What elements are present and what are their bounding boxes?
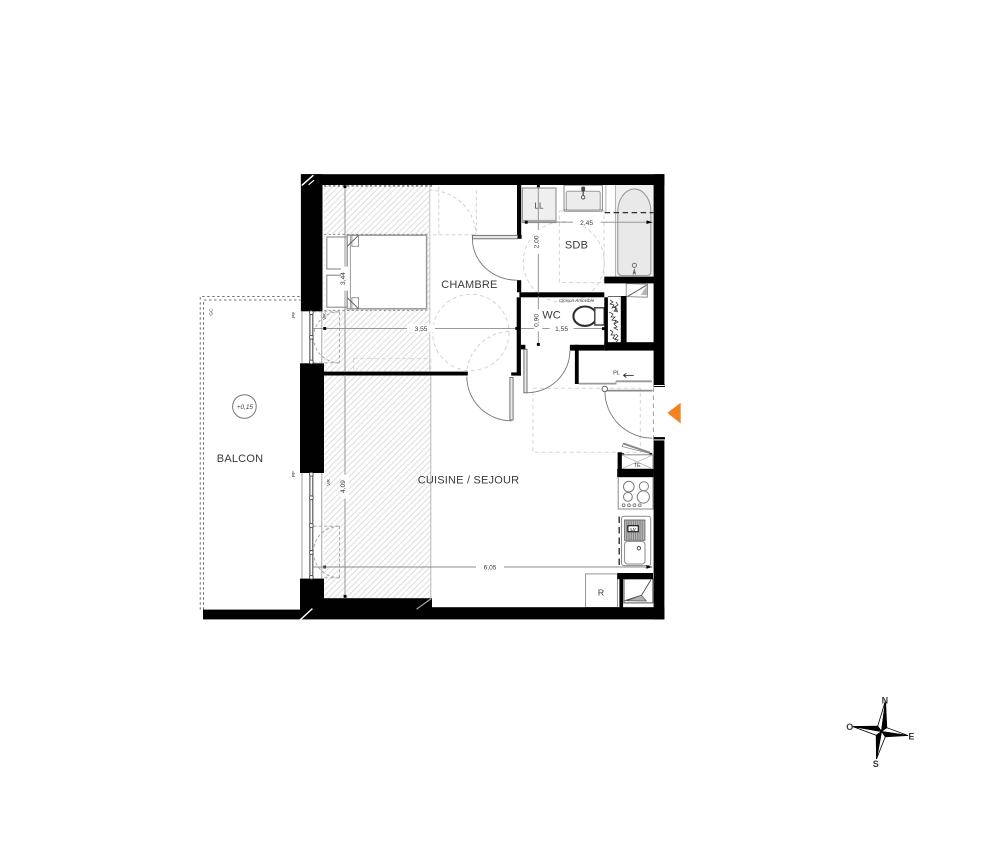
svg-text:S: S [873,759,879,769]
svg-text:WC: WC [542,309,561,321]
svg-text:1,55: 1,55 [555,326,568,333]
svg-text:4,09: 4,09 [340,480,347,493]
svg-text:Cloison Amovible: Cloison Amovible [559,298,595,303]
svg-text:BALCON: BALCON [217,453,263,465]
svg-text:CUISINE / SEJOUR: CUISINE / SEJOUR [418,475,520,487]
svg-text:PF: PF [291,471,297,477]
svg-text:VR: VR [326,479,332,486]
svg-text:PF: PF [291,312,297,318]
svg-text:VR: VR [322,313,328,320]
svg-text:0,90: 0,90 [533,314,540,327]
svg-text:3,55: 3,55 [415,326,428,333]
svg-text:N: N [882,695,889,705]
svg-text:3,44: 3,44 [340,272,347,285]
svg-text:O: O [846,722,853,732]
svg-text:2,00: 2,00 [533,235,540,248]
svg-text:CHAMBRE: CHAMBRE [441,279,497,291]
svg-text:R: R [598,587,604,597]
svg-text:LL: LL [534,202,544,211]
svg-text:TE: TE [634,463,641,469]
svg-text:PL: PL [613,371,620,377]
svg-text:LV: LV [630,527,636,532]
svg-text:+0,15: +0,15 [237,404,254,411]
svg-text:6,05: 6,05 [484,565,497,572]
svg-text:GC: GC [209,308,215,316]
svg-text:2,45: 2,45 [580,220,593,227]
svg-text:SDB: SDB [565,239,588,251]
svg-text:E: E [908,731,914,741]
